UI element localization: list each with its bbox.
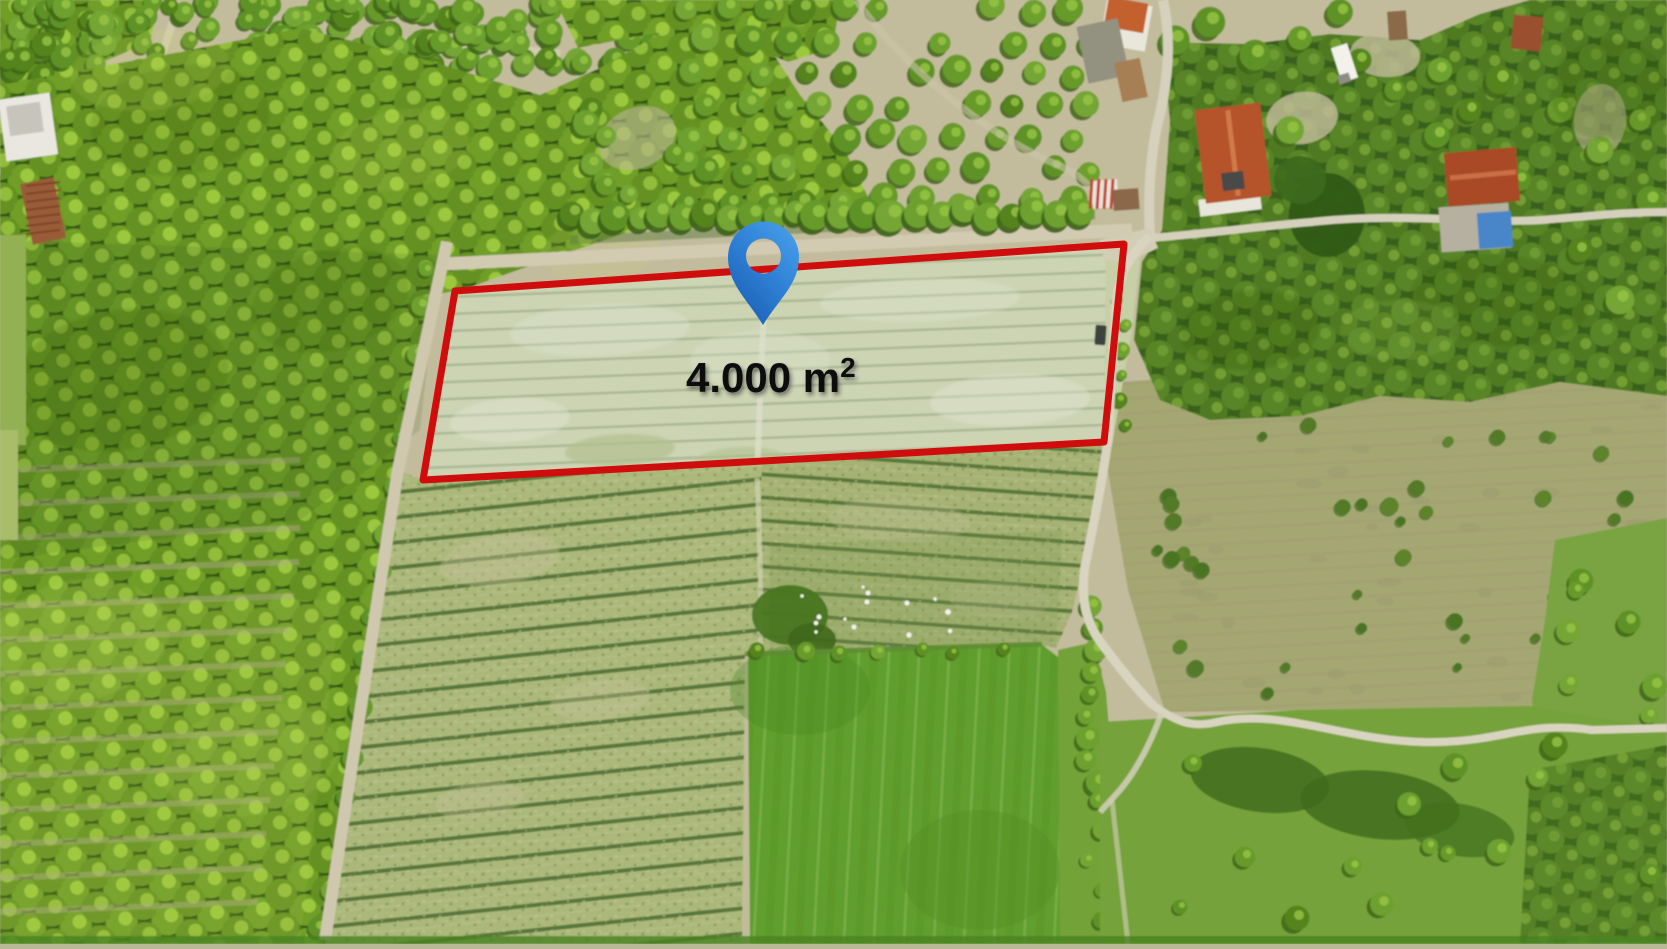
svg-text:4.000 m2: 4.000 m2	[686, 352, 856, 401]
